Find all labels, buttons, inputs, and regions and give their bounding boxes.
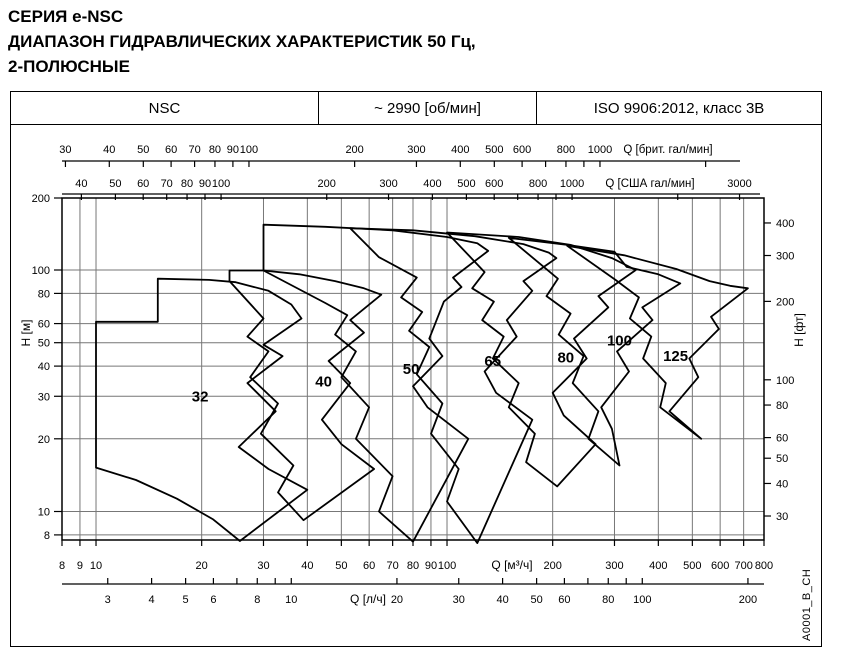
- svg-text:40: 40: [75, 178, 87, 190]
- svg-text:200: 200: [543, 560, 561, 572]
- svg-text:Q [США гал/мин]: Q [США гал/мин]: [605, 178, 694, 190]
- svg-text:200: 200: [32, 193, 50, 205]
- svg-text:600: 600: [711, 560, 729, 572]
- svg-text:H [м]: H [м]: [19, 320, 33, 347]
- svg-text:80: 80: [776, 400, 788, 412]
- svg-text:10: 10: [285, 594, 297, 606]
- pump-size-envelopes: [96, 225, 748, 543]
- svg-text:90: 90: [425, 560, 437, 572]
- x-axis-m3h: 8910203040506070809010020030040050060070…: [59, 540, 773, 572]
- svg-text:200: 200: [318, 178, 336, 190]
- svg-text:60: 60: [137, 178, 149, 190]
- svg-text:60: 60: [558, 594, 570, 606]
- x-axis-ls: 3456810203040506080100200Q [л/ч]: [62, 578, 764, 606]
- svg-text:50: 50: [38, 338, 50, 350]
- svg-text:50: 50: [403, 361, 420, 378]
- svg-text:60: 60: [776, 433, 788, 445]
- svg-text:30: 30: [59, 144, 71, 156]
- svg-text:Q [л/ч]: Q [л/ч]: [350, 592, 386, 606]
- svg-text:400: 400: [776, 218, 794, 230]
- svg-text:5: 5: [183, 594, 189, 606]
- envelope-65: [350, 228, 556, 543]
- svg-text:20: 20: [38, 434, 50, 446]
- svg-text:300: 300: [379, 178, 397, 190]
- svg-text:800: 800: [755, 560, 773, 572]
- svg-text:70: 70: [188, 144, 200, 156]
- svg-text:80: 80: [181, 178, 193, 190]
- svg-text:9: 9: [77, 560, 83, 572]
- pump-range-chart-page: СЕРИЯ e-NSC ДИАПАЗОН ГИДРАВЛИЧЕСКИХ ХАРА…: [0, 0, 841, 648]
- svg-text:6: 6: [210, 594, 216, 606]
- svg-text:30: 30: [453, 594, 465, 606]
- svg-text:32: 32: [192, 388, 209, 405]
- svg-text:100: 100: [633, 594, 651, 606]
- svg-text:100: 100: [607, 333, 632, 350]
- svg-text:40: 40: [776, 478, 788, 490]
- svg-text:50: 50: [335, 560, 347, 572]
- svg-text:65: 65: [484, 353, 501, 370]
- svg-text:Q [брит. гал/мин]: Q [брит. гал/мин]: [623, 144, 712, 156]
- svg-text:80: 80: [407, 560, 419, 572]
- svg-text:20: 20: [391, 594, 403, 606]
- drawing-code-label: A0001_B_CH: [801, 569, 813, 641]
- svg-text:400: 400: [451, 144, 469, 156]
- svg-text:300: 300: [605, 560, 623, 572]
- svg-text:100: 100: [240, 144, 258, 156]
- svg-text:200: 200: [739, 594, 757, 606]
- svg-text:30: 30: [257, 560, 269, 572]
- svg-text:600: 600: [513, 144, 531, 156]
- svg-text:30: 30: [38, 391, 50, 403]
- svg-text:40: 40: [301, 560, 313, 572]
- svg-text:60: 60: [165, 144, 177, 156]
- svg-text:60: 60: [363, 560, 375, 572]
- svg-text:80: 80: [602, 594, 614, 606]
- y-axis-right: 4003002001008060504030H [фт]: [764, 218, 806, 523]
- svg-text:50: 50: [137, 144, 149, 156]
- envelope-100: [509, 238, 681, 466]
- x-axis-usa-gpm: 4050607080901002003004005006008001000300…: [62, 178, 760, 200]
- svg-text:4: 4: [149, 594, 155, 606]
- svg-text:20: 20: [196, 560, 208, 572]
- svg-text:1000: 1000: [588, 144, 612, 156]
- svg-text:80: 80: [209, 144, 221, 156]
- svg-text:80: 80: [557, 349, 574, 366]
- svg-text:3000: 3000: [727, 178, 751, 190]
- range-chart: 200100806050403020108H [м]40030020010080…: [0, 0, 841, 648]
- svg-text:800: 800: [557, 144, 575, 156]
- svg-text:70: 70: [161, 178, 173, 190]
- svg-text:10: 10: [38, 507, 50, 519]
- svg-text:800: 800: [529, 178, 547, 190]
- svg-text:100: 100: [776, 375, 794, 387]
- svg-text:50: 50: [530, 594, 542, 606]
- svg-text:200: 200: [345, 144, 363, 156]
- svg-text:40: 40: [315, 374, 332, 391]
- svg-text:H [фт]: H [фт]: [792, 313, 806, 347]
- svg-text:100: 100: [212, 178, 230, 190]
- svg-text:60: 60: [38, 319, 50, 331]
- envelope-80: [447, 233, 636, 487]
- y-axis-left: 200100806050403020108H [м]: [19, 193, 62, 542]
- svg-text:100: 100: [438, 560, 456, 572]
- svg-text:1000: 1000: [560, 178, 584, 190]
- svg-text:10: 10: [90, 560, 102, 572]
- svg-text:50: 50: [109, 178, 121, 190]
- svg-text:400: 400: [423, 178, 441, 190]
- svg-text:40: 40: [38, 361, 50, 373]
- svg-text:500: 500: [485, 144, 503, 156]
- svg-text:8: 8: [44, 530, 50, 542]
- svg-text:8: 8: [59, 560, 65, 572]
- svg-text:40: 40: [103, 144, 115, 156]
- svg-text:600: 600: [485, 178, 503, 190]
- svg-text:300: 300: [407, 144, 425, 156]
- svg-text:Q [м³/ч]: Q [м³/ч]: [491, 558, 532, 572]
- envelope-50: [264, 225, 489, 542]
- x-axis-brit-gpm: 304050607080901002003004005006008001000Q…: [59, 144, 740, 167]
- svg-text:8: 8: [254, 594, 260, 606]
- svg-text:40: 40: [496, 594, 508, 606]
- svg-text:30: 30: [776, 511, 788, 523]
- svg-text:50: 50: [776, 453, 788, 465]
- svg-text:700: 700: [734, 560, 752, 572]
- svg-text:200: 200: [776, 296, 794, 308]
- svg-text:500: 500: [683, 560, 701, 572]
- svg-text:500: 500: [457, 178, 475, 190]
- svg-text:90: 90: [227, 144, 239, 156]
- svg-text:80: 80: [38, 288, 50, 300]
- svg-text:125: 125: [663, 348, 688, 365]
- svg-text:70: 70: [387, 560, 399, 572]
- svg-text:100: 100: [32, 265, 50, 277]
- svg-text:90: 90: [199, 178, 211, 190]
- svg-text:3: 3: [105, 594, 111, 606]
- svg-text:300: 300: [776, 251, 794, 263]
- svg-text:400: 400: [649, 560, 667, 572]
